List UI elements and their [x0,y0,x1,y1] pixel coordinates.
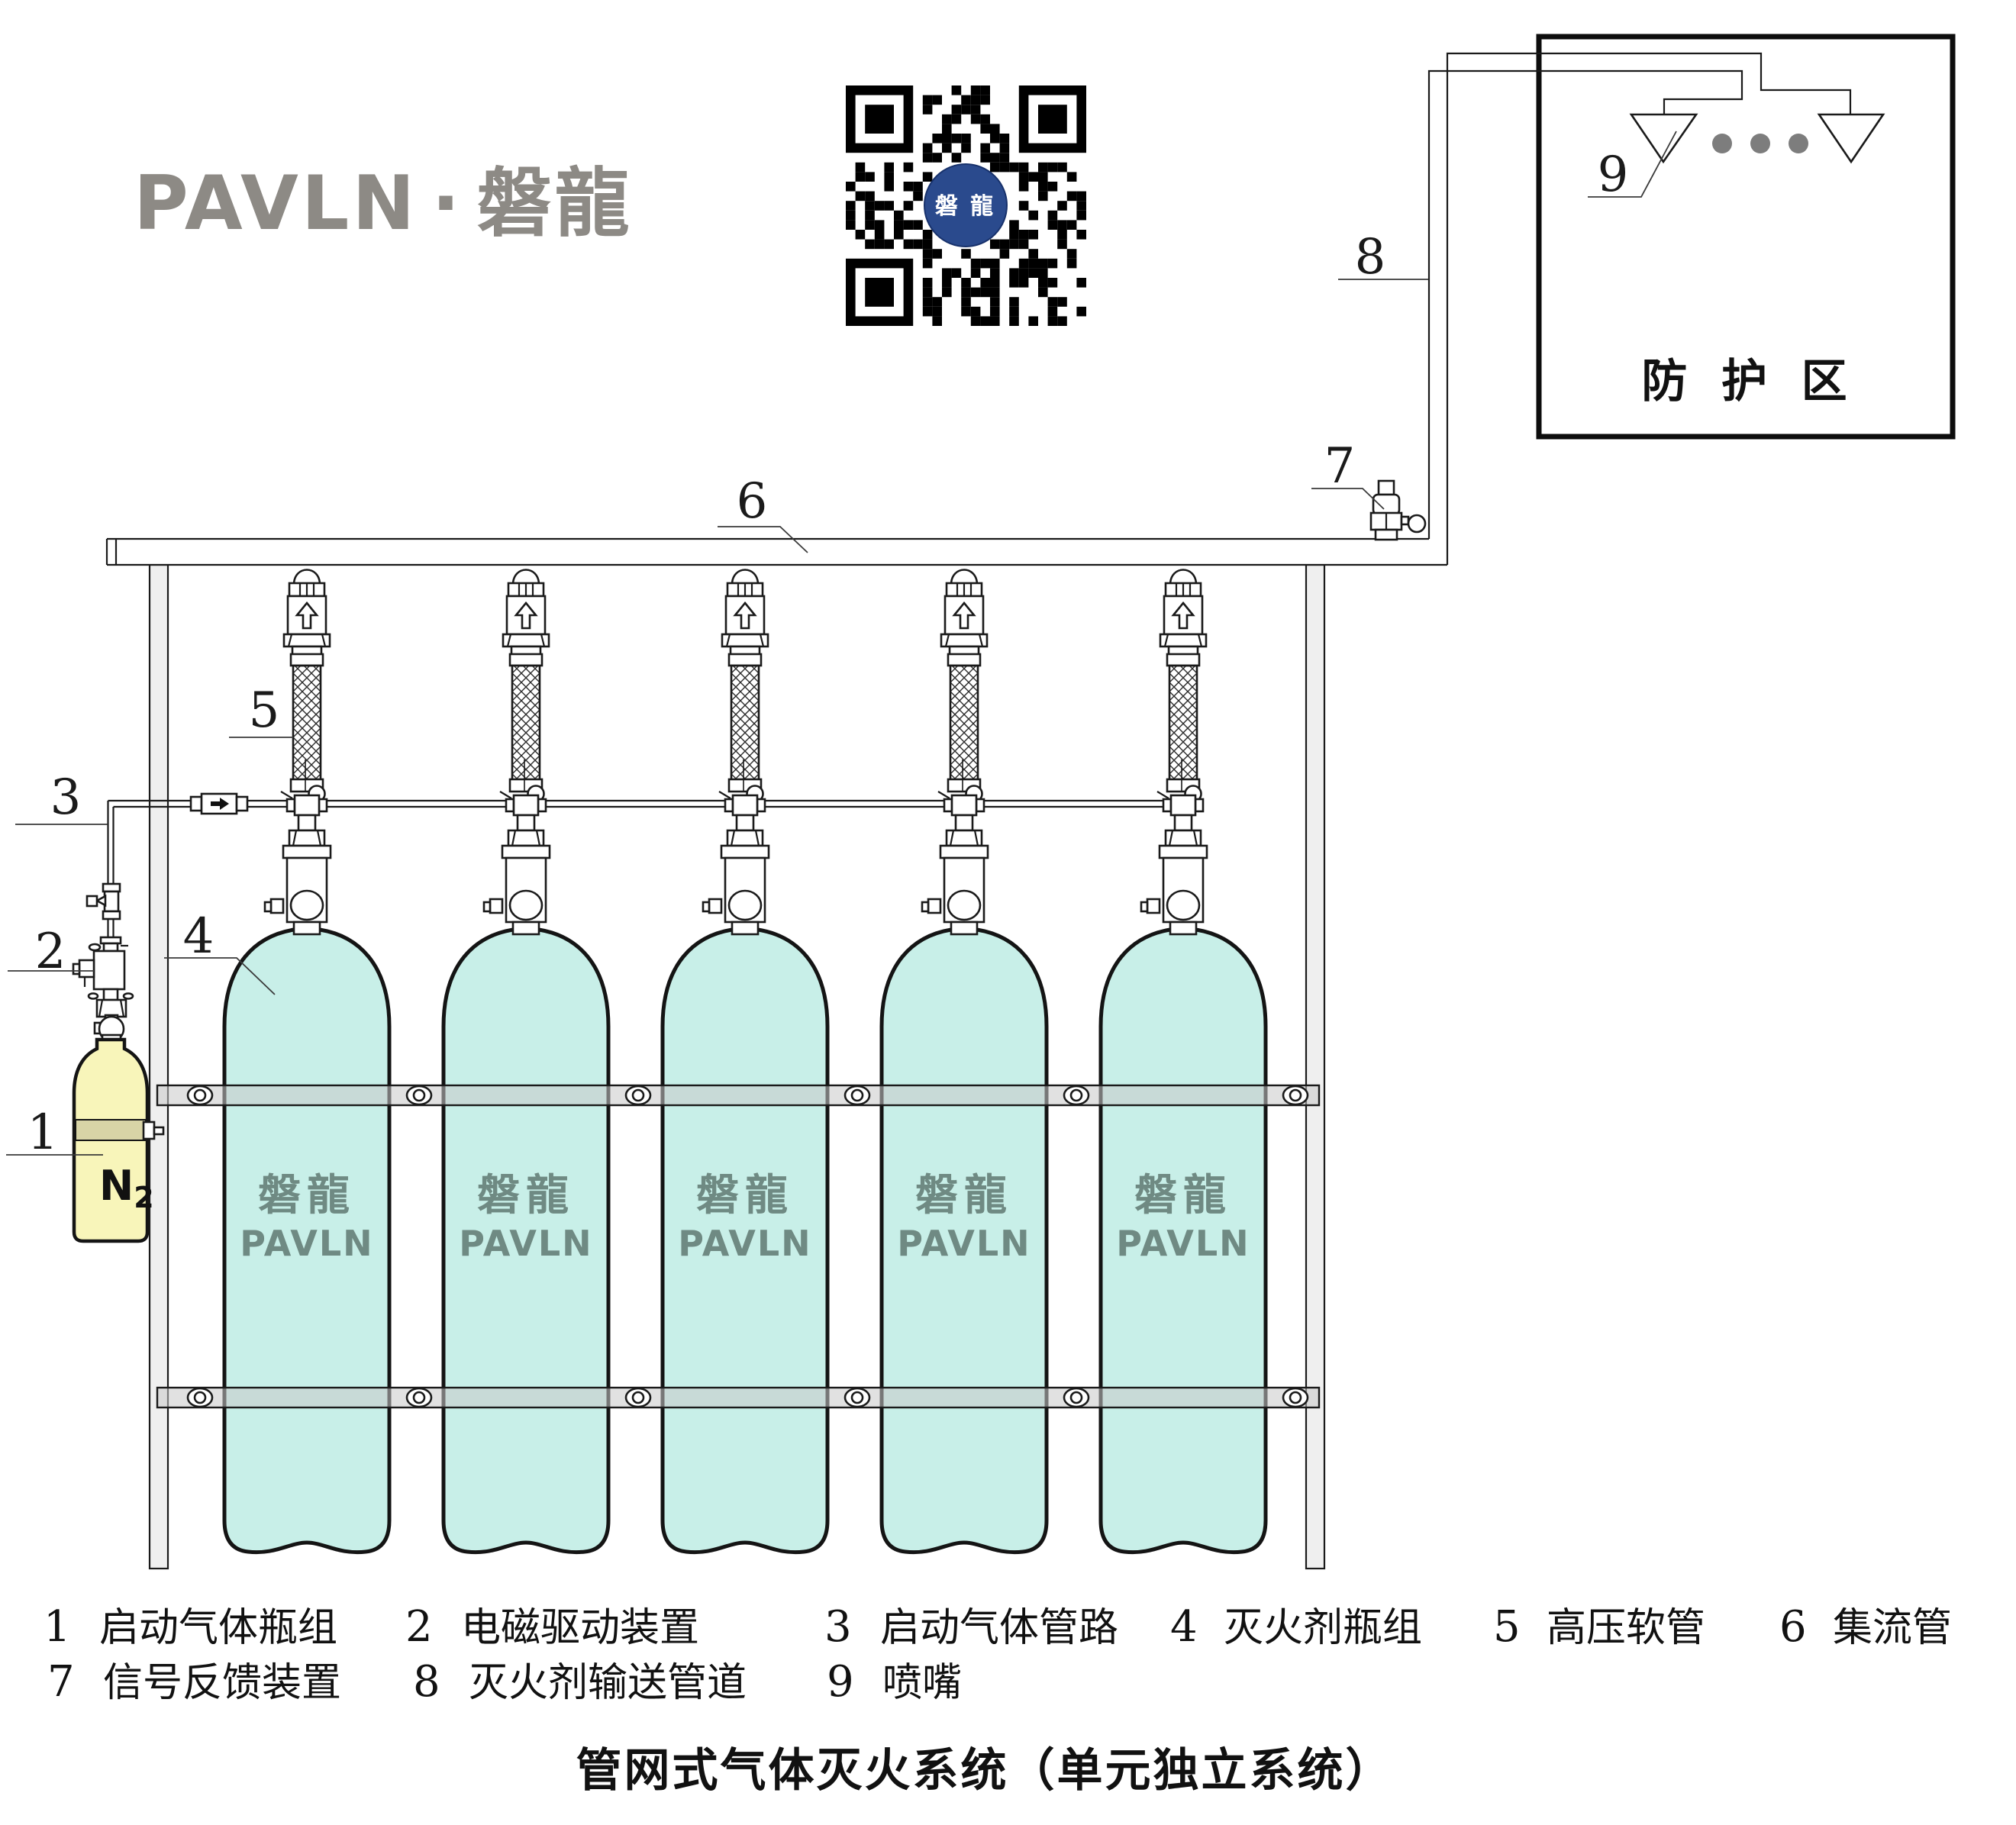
svg-text:9: 9 [1598,147,1629,203]
callout-3: 3 [15,769,108,826]
legend-num: 9 [827,1657,854,1707]
cylinder-brand-cn: 磐龍 [477,1171,575,1219]
qr-code: 磐 龍 [840,79,1092,331]
signal-feedback-device [1371,481,1425,540]
pilot-check-valve [191,794,247,814]
cylinder-brand-cn: 磐龍 [1134,1171,1232,1219]
qr-center-label: 磐 龍 [935,193,996,219]
legend-num: 7 [47,1657,75,1707]
legend-label: 电磁驱动装置 [461,1606,699,1650]
legend-label: 集流管 [1833,1606,1952,1650]
legend-num: 8 [413,1657,440,1707]
nozzle-dot [1712,134,1732,153]
legend: 1 启动气体瓶组 2 电磁驱动装置 3 启动气体管路 4 灭火剂瓶组 5 高压软… [44,1602,1952,1707]
legend-num: 6 [1779,1602,1807,1652]
legend-label: 高压软管 [1547,1606,1705,1650]
cylinder-brand-cn: 磐龍 [915,1171,1013,1219]
gas-suppression-system-diagram: PAVLN·磐龍 磐 龍 防 护 区 [0,0,2016,1825]
legend-num: 5 [1493,1602,1521,1652]
legend-label: 灭火剂瓶组 [1224,1606,1422,1650]
cylinder-brand-en: PAVLN [678,1223,811,1264]
legend-label: 启动气体瓶组 [99,1606,337,1650]
cylinder-brand-en: PAVLN [1116,1223,1250,1264]
svg-text:8: 8 [1355,229,1386,285]
cylinder-valve-assembly [484,570,550,935]
solenoid-drive-device [73,937,133,1041]
cylinder-valve-assembly [703,570,769,935]
diagram-title: 管网式气体灭火系统（单元独立系统） [576,1745,1394,1796]
cylinder-brand-en: PAVLN [897,1223,1031,1264]
cylinder-brand-cn: 磐龍 [696,1171,794,1219]
nozzle-dot [1750,134,1770,153]
callout-5: 5 [229,682,293,739]
svg-text:6: 6 [737,473,768,530]
cylinder-valve-assembly [265,570,331,935]
legend-num: 3 [824,1602,852,1652]
callout-8: 8 [1338,229,1428,285]
pilot-gas-line [87,794,1185,937]
nozzle-dot [1789,134,1808,153]
svg-text:7: 7 [1324,438,1356,495]
legend-num: 1 [44,1602,71,1652]
legend-label: 灭火剂输送管道 [469,1661,747,1705]
svg-text:3: 3 [50,769,82,826]
rack-post-left [150,565,168,1569]
cylinder-brand-en: PAVLN [240,1223,373,1264]
brand-logo: PAVLN·磐龍 [134,160,633,247]
cylinder-valve-assembly [1141,570,1207,935]
legend-label: 启动气体管路 [880,1606,1118,1650]
diagram-page: PAVLN·磐龍 磐 龍 防 护 区 [0,0,2016,1825]
legend-num: 2 [405,1602,433,1652]
cylinder-valve-assembly [922,570,988,935]
protection-zone-label: 防 护 区 [1641,356,1857,407]
svg-text:5: 5 [249,682,280,739]
legend-label: 喷嘴 [882,1661,962,1705]
bottle-clamp-band [76,1120,146,1140]
pilot-tee-valve [87,884,120,919]
svg-text:1: 1 [27,1104,59,1161]
legend-label: 信号反馈装置 [103,1661,341,1705]
rack-post-right [1306,565,1324,1569]
svg-text:4: 4 [183,908,215,965]
cylinder-brand-cn: 磐龍 [258,1171,356,1219]
callout-7: 7 [1311,438,1384,509]
callout-2: 2 [8,924,94,980]
protection-zone: 防 护 区 [1539,37,1953,437]
cylinder-brand-en: PAVLN [459,1223,592,1264]
legend-num: 4 [1170,1602,1198,1652]
